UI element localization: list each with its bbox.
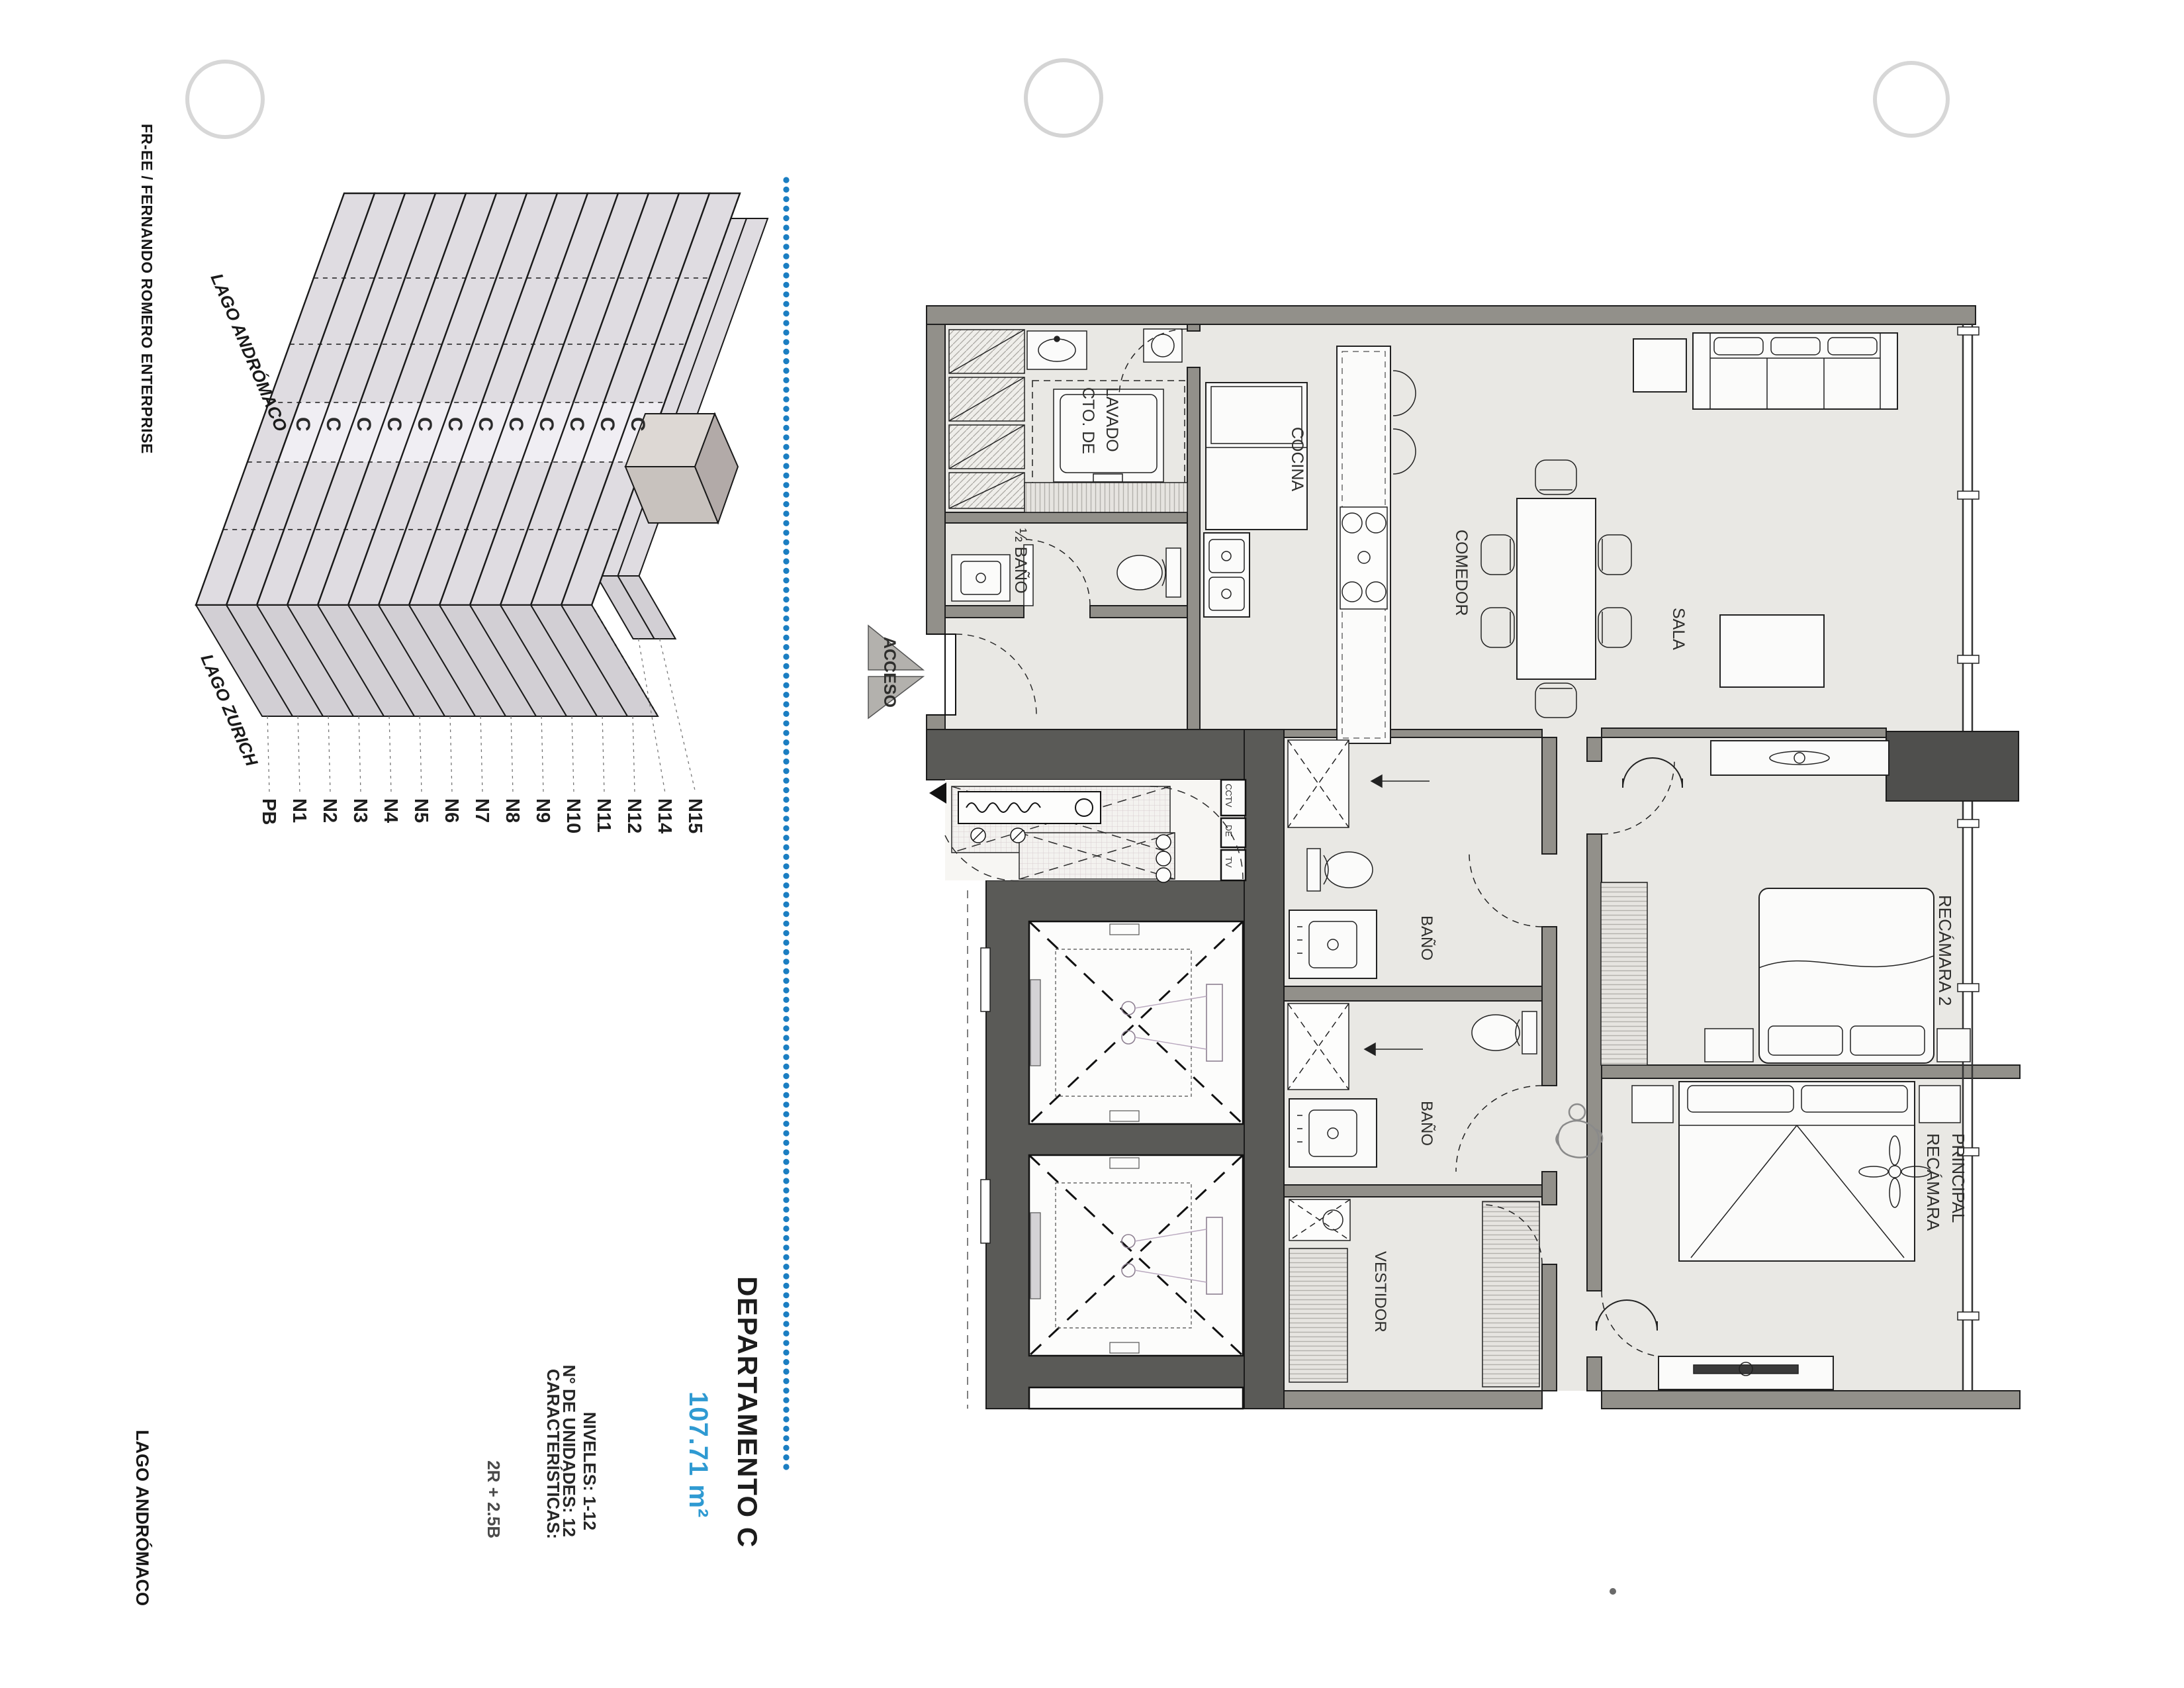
master-bed (1679, 1082, 1915, 1261)
punch-hole (1026, 60, 1101, 136)
toilet-2-part (1522, 1011, 1537, 1054)
floor-label: N11 (593, 798, 614, 833)
divider-dot (783, 844, 789, 850)
wall-bedroom-divider (1602, 1065, 2020, 1078)
wall-laundry-kitchen-stub (1187, 324, 1200, 331)
divider-dot (783, 1197, 789, 1203)
divider-dot (783, 330, 789, 336)
divider-dot (783, 473, 789, 479)
divider-dot (783, 1064, 789, 1070)
wall-halfbath-bottom-a (945, 606, 1024, 618)
wall-bedrooms-bottom (1602, 1391, 2020, 1409)
floor-label: N7 (471, 798, 492, 823)
side-table (1633, 339, 1686, 392)
divider-dot (783, 1188, 789, 1194)
divider-dot (783, 549, 789, 555)
divider-dot (783, 739, 789, 745)
floor-leader-line (660, 639, 696, 793)
label-cell-de: DE (1224, 825, 1234, 837)
floor-leader-line (389, 716, 391, 793)
divider-dot (783, 339, 789, 345)
label-half-bath: ½ BAÑO (1011, 528, 1030, 594)
divider-dot (783, 730, 789, 736)
divider-dot (783, 1006, 789, 1012)
floor-leader-line (602, 716, 604, 793)
elevator-shaft-2 (1029, 1155, 1243, 1356)
floor-label: N3 (349, 798, 371, 823)
floor-label: PB (258, 798, 279, 825)
divider-dot (783, 406, 789, 412)
divider-dot (783, 1035, 789, 1041)
elevator-door (1030, 980, 1040, 1066)
master-bed-part (1679, 1082, 1915, 1261)
floor-label: N8 (502, 798, 523, 823)
divider-dot (783, 320, 789, 326)
divider-dot (783, 224, 789, 230)
divider-dot (783, 1254, 789, 1260)
divider-dot (783, 1283, 789, 1289)
divider-dot (783, 625, 789, 631)
unit-c-marker: C (475, 417, 496, 432)
vanity-2 (1289, 1099, 1377, 1167)
divider-dot (783, 606, 789, 612)
label-acceso: ACCESO (880, 637, 899, 708)
unit-c-marker: C (566, 417, 588, 432)
wall-left-upper (927, 324, 945, 634)
elevator-door (1030, 1213, 1040, 1299)
unit-c-marker: C (383, 417, 405, 432)
divider-dot (783, 663, 789, 669)
cooktop-part (1340, 507, 1387, 609)
laundry-counter-hatch (1024, 483, 1187, 512)
divider-dot (783, 291, 789, 297)
divider-dot (783, 444, 789, 450)
divider-dot (783, 1397, 789, 1403)
elevator-shaft-3-partial (1029, 1387, 1243, 1409)
wall-hall-left-b (1542, 927, 1557, 1086)
divider-dot (783, 978, 789, 984)
closet-utility-box (1289, 1199, 1350, 1241)
divider-dot (783, 1025, 789, 1031)
divider-dot (783, 196, 789, 202)
divider-dot (783, 244, 789, 250)
window-mullion-tick (1958, 984, 1979, 992)
divider-dot (783, 367, 789, 373)
wall-bath1-bath2 (1284, 986, 1542, 1001)
divider-dot (783, 1464, 789, 1470)
divider-dot (783, 1331, 789, 1336)
street-top-label: LAGO ANDRÓMACO (206, 271, 291, 435)
divider-dot (783, 301, 789, 307)
wall-laundry-kitchen (1187, 367, 1200, 738)
punch-holes (187, 60, 1948, 137)
divider-dot (783, 310, 789, 316)
label-closet: VESTIDOR (1371, 1251, 1389, 1333)
divider-dot (783, 377, 789, 383)
floor-leader-line (572, 716, 574, 793)
label-bedroom2: RECÁMARA 2 (1935, 895, 1955, 1006)
divider-dot (783, 215, 789, 221)
divider-dot (783, 806, 789, 812)
wall-hall-right-c (1587, 1357, 1602, 1391)
divider-dot (783, 1016, 789, 1022)
unit-c-marker: C (322, 417, 344, 432)
label-dining: COMEDOR (1452, 530, 1471, 616)
divider-dot (783, 1359, 789, 1365)
divider-dot (783, 959, 789, 964)
elevator-shaft-1 (1029, 921, 1243, 1124)
floor-label: N14 (654, 798, 675, 833)
divider-dot (783, 921, 789, 927)
toilet-1-part (1325, 852, 1373, 888)
divider-dot (783, 902, 789, 908)
unit-title: DEPARTAMENTO C (732, 1276, 763, 1548)
divider-dot (783, 1273, 789, 1279)
divider-dot (783, 1111, 789, 1117)
divider-dot (783, 492, 789, 498)
divider-dot (783, 1445, 789, 1451)
divider-dot (783, 854, 789, 860)
divider-dot (783, 939, 789, 945)
floor-leader-line (328, 716, 330, 793)
divider-dot (783, 1149, 789, 1155)
divider-dot (783, 1130, 789, 1136)
label-bath1: BAÑO (1418, 915, 1435, 961)
laundry-shelving (949, 330, 1024, 508)
divider-dot (783, 1350, 789, 1356)
divider-dot (783, 778, 789, 784)
divider-dot (783, 635, 789, 641)
corridor-exit-arrow-icon (929, 782, 946, 804)
divider-dot (783, 997, 789, 1003)
master-dresser (1659, 1356, 1833, 1389)
sofa (1693, 333, 1897, 409)
divider-dot (783, 1216, 789, 1222)
floor-label: N10 (563, 798, 584, 833)
floor-label: N5 (410, 798, 432, 823)
divider-dot (783, 682, 789, 688)
divider-dot (783, 463, 789, 469)
floor-label: N9 (532, 798, 553, 823)
divider-dot (783, 358, 789, 364)
intercom-panel-part (1156, 868, 1171, 882)
street-footer-label: LAGO ANDRÓMACO (132, 1430, 153, 1606)
wall-bath2-closet (1284, 1185, 1542, 1197)
divider-dot (783, 254, 789, 259)
label-living: SALA (1669, 608, 1688, 650)
laundry-sink-part (1054, 336, 1060, 342)
floor-leader-line (359, 716, 361, 793)
landing-door-1 (981, 948, 990, 1011)
divider-dot (783, 1073, 789, 1079)
toilet-2 (1472, 1011, 1537, 1054)
window-glazing-part (1963, 324, 1972, 1391)
divider-dot (783, 987, 789, 993)
floor-leader-line (420, 716, 422, 793)
nightstand (1919, 1086, 1960, 1123)
bedroom2-bed-part (1759, 888, 1934, 1063)
title-block: DEPARTAMENTO C 107.71 m² NIVELES: 1-12 N… (484, 1276, 763, 1548)
divider-dot (783, 759, 789, 765)
divider-dot (783, 425, 789, 431)
divider-dot (783, 1416, 789, 1422)
divider-dot (783, 1340, 789, 1346)
toilet-1 (1307, 849, 1373, 891)
kitchen-sink-cabinet-part (1204, 533, 1250, 617)
floor-label: N2 (319, 798, 340, 823)
divider-dot (783, 1140, 789, 1146)
divider-dot (783, 653, 789, 659)
floor-label: N15 (684, 798, 705, 833)
floor-label: N6 (441, 798, 462, 823)
divider-dot (783, 1454, 789, 1460)
dining-table (1517, 498, 1596, 679)
intercom-panel-part (1075, 799, 1093, 816)
coffee-table (1720, 615, 1824, 687)
floor-leader-line (511, 716, 513, 793)
divider-dot (783, 1092, 789, 1098)
divider-dot (783, 873, 789, 879)
divider-dot (783, 587, 789, 593)
label-master-2: PRINCIPAL (1948, 1133, 1968, 1223)
divider-dot (783, 787, 789, 793)
divider-dot (783, 434, 789, 440)
divider-dot (783, 1244, 789, 1250)
divider-dot (783, 558, 789, 564)
wall-bath-col-top (1284, 729, 1542, 737)
kitchen-sink-cabinet (1204, 533, 1250, 617)
divider-dot (783, 415, 789, 421)
half-bath-toilet-part (1166, 548, 1181, 597)
divider-dot (783, 1159, 789, 1165)
laundry-sink (1027, 331, 1087, 369)
divider-dot (783, 187, 789, 193)
divider-dot (783, 234, 789, 240)
punch-hole (1875, 63, 1948, 136)
unit-c-marker: C (627, 417, 649, 432)
divider-dot (783, 177, 789, 183)
divider-dot (783, 501, 789, 507)
divider-dot (783, 482, 789, 488)
building-axonometric: CCCCCCCCCCCCPBN1N2N3N4N5N6N7N8N9N10N11N1… (196, 193, 768, 833)
floor-label: N4 (380, 798, 401, 823)
floor-leader-line (267, 716, 269, 793)
divider-dot (783, 1121, 789, 1127)
divider-dot (783, 711, 789, 717)
divider-dot (783, 911, 789, 917)
divider-dot (783, 1321, 789, 1327)
divider-dot (783, 949, 789, 955)
label-cell-tv: TV (1224, 857, 1234, 868)
unit-c-marker: C (353, 417, 375, 432)
divider-dot (783, 1235, 789, 1241)
bedroom2-bed (1759, 888, 1934, 1063)
detail-niveles: NIVELES: 1-12 (580, 1412, 600, 1530)
divider-dot (783, 749, 789, 755)
unit-c-marker: C (535, 417, 557, 432)
divider-dot (783, 1435, 789, 1441)
intercom-panel-part (1156, 835, 1171, 849)
floor-label: N1 (289, 798, 310, 823)
label-kitchen: COCINA (1288, 427, 1306, 492)
label-master-1: RECÁMARA (1923, 1133, 1943, 1231)
divider-dot (783, 1292, 789, 1298)
divider-dot (783, 930, 789, 936)
toilet-2-part (1472, 1015, 1520, 1051)
landing-door-2 (981, 1180, 990, 1243)
divider-dot (783, 387, 789, 393)
brand-label: FR-EE / FERNANDO ROMERO ENTERPRISE (138, 124, 156, 454)
floor-leader-line (633, 716, 635, 793)
divider-dot (783, 577, 789, 583)
divider-dot (783, 349, 789, 355)
bedroom2-desk-part (1711, 741, 1889, 775)
unit-c-marker: C (505, 417, 527, 432)
sofa-part (1693, 333, 1897, 409)
divider-dot (783, 1264, 789, 1270)
floor-plan: ACCESO CTO. DE LAVADO ½ BAÑO COCINA COME… (868, 306, 2020, 1595)
divider-dot (783, 882, 789, 888)
intercom-panel-part (1156, 851, 1171, 866)
divider-dotted-line (783, 177, 789, 1470)
axon-slab-stack: CCCCCCCCCCCCPBN1N2N3N4N5N6N7N8N9N10N11N1… (196, 193, 768, 833)
detail-caracteristicas: CARACTERÍSTICAS: (543, 1369, 563, 1539)
wall-halfbath-bottom-b (1090, 606, 1187, 618)
label-bath2: BAÑO (1418, 1101, 1435, 1146)
wall-hall-right-b (1587, 834, 1602, 1291)
unit-c-marker: C (292, 417, 314, 432)
divider-dot (783, 1368, 789, 1374)
divider-dot (783, 1178, 789, 1184)
vanity-1 (1289, 910, 1377, 978)
core-wall-right (1244, 729, 1284, 1409)
window-mullion-tick (1958, 820, 1979, 827)
entry-door-leaf (945, 634, 956, 715)
label-laundry-2: LAVADO (1103, 387, 1121, 452)
bedroom2-closet (1601, 882, 1647, 1065)
divider-dot (783, 1045, 789, 1051)
plan-sheet: FR-EE / FERNANDO ROMERO ENTERPRISE LAGO … (0, 0, 2184, 1688)
bedroom2-desk (1711, 741, 1889, 775)
divider-dot (783, 1387, 789, 1393)
divider-dot (783, 720, 789, 726)
wall-hall-left-d (1542, 1264, 1557, 1391)
divider-dot (783, 1225, 789, 1231)
core-wall-corridor-top (927, 729, 1244, 780)
page-side-labels: FR-EE / FERNANDO ROMERO ENTERPRISE LAGO … (132, 124, 156, 1606)
toilet-1-part (1307, 849, 1320, 891)
divider-dot (783, 616, 789, 622)
divider-dot (783, 539, 789, 545)
window-mullion-tick (1958, 491, 1979, 499)
divider-dot (783, 1054, 789, 1060)
detail-features: 2R + 2.5B (484, 1460, 504, 1538)
scanned-page: FR-EE / FERNANDO ROMERO ENTERPRISE LAGO … (0, 0, 2184, 1688)
divider-dot (783, 796, 789, 802)
divider-dot (783, 1102, 789, 1107)
closet-rack-left (1289, 1248, 1347, 1382)
divider-dot (783, 1311, 789, 1317)
divider-dot (783, 968, 789, 974)
divider-dot (783, 825, 789, 831)
floor-label: N12 (623, 798, 645, 833)
nightstand (1632, 1086, 1673, 1123)
divider-dot (783, 1207, 789, 1213)
window-mullion-tick (1958, 327, 1979, 335)
divider-dot (783, 1378, 789, 1384)
divider-dot (783, 1168, 789, 1174)
divider-dot (783, 701, 789, 707)
divider-dot (783, 644, 789, 650)
window-mullion-tick (1958, 1312, 1979, 1320)
laundry-room (949, 329, 1187, 512)
half-bath-vanity (952, 555, 1010, 601)
divider-dot (783, 673, 789, 679)
half-bath-toilet-part (1117, 555, 1162, 590)
divider-dot (783, 272, 789, 278)
divider-dot (783, 568, 789, 574)
divider-dot (783, 397, 789, 402)
divider-dot (783, 768, 789, 774)
divider-dot (783, 263, 789, 269)
divider-dot (783, 1082, 789, 1088)
wall-bedroom2-top (1602, 728, 1886, 737)
scan-speck (1610, 1588, 1616, 1595)
floor-leader-line (541, 716, 543, 793)
wall-hall-left-c (1542, 1172, 1557, 1205)
wall-laundry-counter (945, 512, 1187, 523)
unit-c-marker: C (596, 417, 618, 432)
divider-dot (783, 510, 789, 516)
divider-dot (783, 1426, 789, 1432)
cooktop (1340, 507, 1387, 609)
floor-leader-line (480, 716, 482, 793)
punch-hole (187, 62, 263, 137)
divider-dot (783, 530, 789, 536)
divider-dot (783, 816, 789, 821)
divider-dot (783, 453, 789, 459)
divider-dot (783, 835, 789, 841)
floor-leader-line (298, 716, 300, 793)
floor-leader-line (450, 716, 452, 793)
divider-dot (783, 282, 789, 288)
wall-hall-right-a (1587, 737, 1602, 761)
divider-dot (783, 1407, 789, 1413)
wall-hall-left-a (1542, 737, 1557, 854)
unit-c-marker: C (414, 417, 435, 432)
divider-dot (783, 692, 789, 698)
label-laundry-1: CTO. DE (1079, 387, 1097, 454)
entry-threshold (927, 634, 945, 715)
divider-dot (783, 863, 789, 869)
nightstand (1937, 1029, 1970, 1062)
divider-dot (783, 892, 789, 898)
label-cell-cctv: CCTV (1224, 784, 1234, 808)
unit-area: 107.71 m² (684, 1391, 713, 1518)
divider-dot (783, 520, 789, 526)
window-mullion-tick (1958, 655, 1979, 663)
divider-dot (783, 206, 789, 212)
unit-c-marker: C (444, 417, 466, 432)
shear-wall-block (1886, 731, 2019, 801)
wall-top (927, 306, 1976, 324)
divider-dot (783, 596, 789, 602)
divider-dot (783, 1302, 789, 1308)
master-dresser-part (1694, 1365, 1798, 1374)
wall-bath-col-bottom (1284, 1391, 1542, 1409)
nightstand (1705, 1029, 1753, 1062)
